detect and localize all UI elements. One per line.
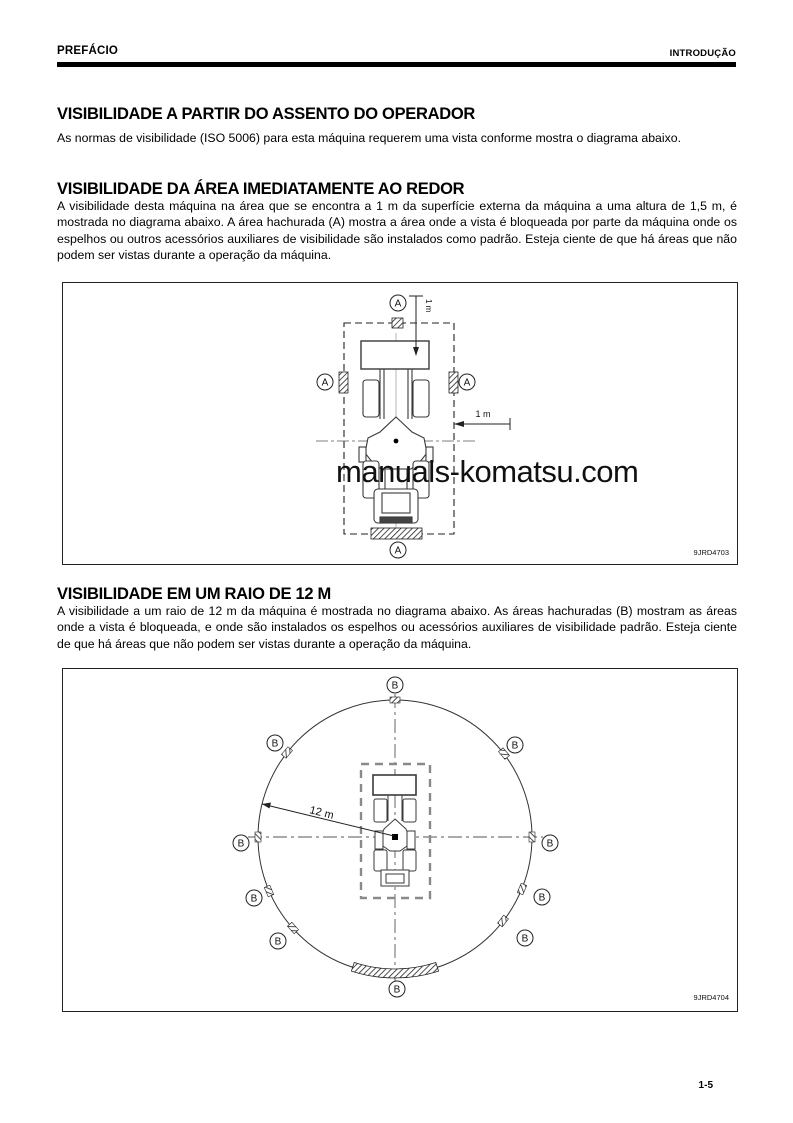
front-wheel-left [374, 799, 387, 822]
marker-b-label: B [238, 839, 245, 850]
hatch-left [255, 832, 261, 842]
header-left-title: PREFÁCIO [57, 45, 118, 57]
arrowhead-radius [262, 803, 271, 809]
rear-wheel-right [403, 850, 416, 871]
watermark-text: manuals-komatsu.com [336, 454, 638, 489]
machine-center-point [392, 834, 398, 840]
figure-2-drawing-code: 9JRD4704 [694, 993, 729, 1002]
section-heading-12m-radius: VISIBILIDADE EM UM RAIO DE 12 M [57, 585, 331, 604]
front-wheel-right [403, 799, 416, 822]
dimension-right [454, 418, 510, 430]
figure-12m-visibility-drawing: 12 m B B B [63, 669, 735, 1009]
section-body-immediate-area: A visibilidade desta máquina na área que… [57, 198, 737, 264]
dimension-top-label: 1 m [424, 299, 433, 313]
radius-label: 12 m [308, 804, 335, 822]
section-body-12m-radius: A visibilidade a um raio de 12 m da máqu… [57, 603, 737, 652]
hatch-top [390, 697, 400, 703]
machine-top-view [359, 341, 433, 523]
section-heading-immediate-area: VISIBILIDADE DA ÁREA IMEDIATAMENTE AO RE… [57, 180, 464, 199]
marker-b-label: B [392, 681, 399, 692]
figure-12m-visibility: 12 m B B B [62, 668, 738, 1012]
hatch-lower-left-mid [264, 885, 273, 897]
hatched-area-bottom [371, 528, 422, 539]
hatched-area-right [449, 372, 458, 393]
figure-1m-visibility-drawing: 1 m 1 m A A A A manuals-komatsu.com [63, 283, 735, 562]
manual-page: PREFÁCIO INTRODUÇÃO VISIBILIDADE A PARTI… [0, 0, 793, 1123]
bucket [361, 341, 429, 369]
header-right-title: INTRODUÇÃO [670, 48, 736, 59]
rear-body-inner [386, 874, 404, 883]
rear-wheel-left [374, 850, 387, 871]
rear-bumper [380, 517, 412, 523]
page-number: 1-5 [699, 1080, 713, 1091]
marker-b-label: B [272, 739, 279, 750]
section-heading-operator-seat: VISIBILIDADE A PARTIR DO ASSENTO DO OPER… [57, 105, 475, 124]
marker-a-right-label: A [464, 378, 471, 389]
header-rule [57, 62, 736, 67]
hatched-area-left [339, 372, 348, 393]
section-body-operator-seat: As normas de visibilidade (ISO 5006) par… [57, 130, 737, 146]
figure-1m-visibility: 1 m 1 m A A A A manuals-komatsu.com [62, 282, 738, 565]
hatched-area-top [392, 318, 403, 328]
side-step-right [407, 831, 415, 849]
hatch-lower-right-mid [517, 883, 526, 895]
marker-a-left-label: A [322, 378, 329, 389]
marker-a-top-label: A [395, 299, 402, 310]
marker-b-label: B [251, 894, 258, 905]
bucket [373, 775, 416, 795]
machine-center-point [394, 439, 399, 444]
marker-b-label: B [547, 839, 554, 850]
rear-body-inner [382, 493, 410, 513]
hatch-right [529, 832, 535, 842]
machine-top-view [373, 775, 416, 886]
marker-b-label: B [512, 741, 519, 752]
figure-1-drawing-code: 9JRD4703 [694, 548, 729, 557]
front-wheel-left [363, 380, 379, 417]
marker-b-label: B [522, 934, 529, 945]
side-step-left [375, 831, 383, 849]
arrowhead-left [454, 421, 464, 427]
dimension-right-label: 1 m [475, 409, 490, 419]
marker-b-label: B [275, 937, 282, 948]
marker-b-label: B [394, 985, 401, 996]
front-wheel-right [413, 380, 429, 417]
marker-a-bottom-label: A [395, 546, 402, 557]
marker-b-label: B [539, 893, 546, 904]
